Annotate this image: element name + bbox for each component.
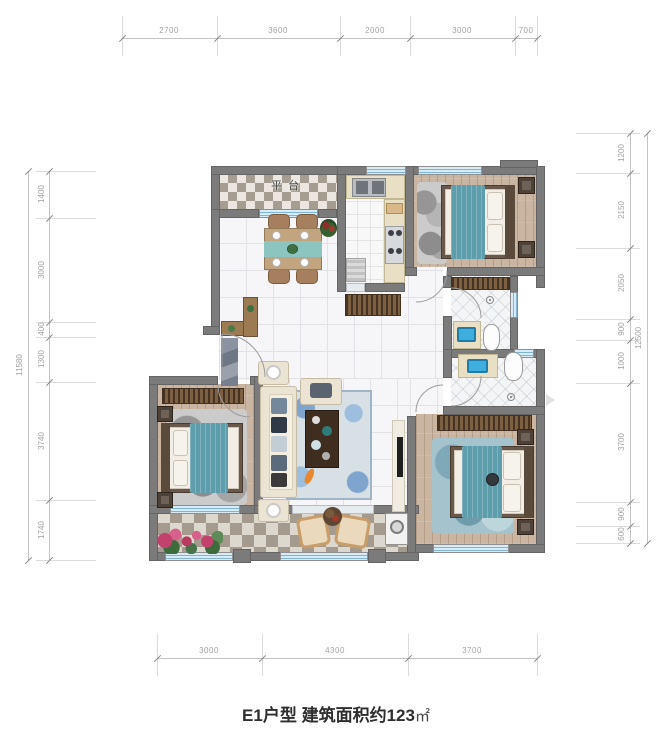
- window-bedroom-top-right: [418, 166, 482, 175]
- dim-line-left-total: [28, 171, 29, 560]
- armchair-cushion: [310, 383, 332, 398]
- dim-label: 1740: [37, 510, 47, 550]
- sink-basin: [356, 181, 368, 194]
- dim-label: 1400: [37, 174, 47, 214]
- plate: [300, 258, 309, 267]
- dim-label: 3700: [442, 646, 502, 655]
- table-decor: [312, 416, 320, 424]
- dim-line-top: [122, 38, 538, 39]
- dim-tick: [644, 540, 651, 547]
- dining-chair: [268, 268, 290, 284]
- dim-label: 3700: [617, 422, 627, 462]
- sofa-pillow: [271, 398, 287, 414]
- bed-blanket: [190, 423, 228, 493]
- dim-label: 1000: [617, 341, 627, 381]
- dim-label: 3000: [37, 250, 47, 290]
- table-decor: [322, 452, 330, 460]
- burner: [396, 230, 402, 236]
- wall: [447, 267, 545, 276]
- dim-label: 3000: [179, 646, 239, 655]
- wall: [318, 209, 337, 218]
- nightstand: [157, 406, 173, 422]
- dim-line-bottom: [157, 658, 538, 659]
- dim-extension-line: [36, 560, 96, 561]
- wall: [149, 376, 218, 385]
- wall: [443, 406, 545, 415]
- bathroom-sink: [467, 359, 488, 373]
- dim-extension-line: [36, 500, 96, 501]
- flower-bed: [157, 524, 223, 554]
- dim-label: 700: [496, 26, 556, 35]
- dim-label: 3000: [432, 26, 492, 35]
- kitchen-shelf: [346, 258, 366, 282]
- bed-pillow: [503, 484, 521, 512]
- dim-label: 2050: [617, 263, 627, 303]
- dim-label: 2150: [617, 190, 627, 230]
- wall: [500, 160, 538, 168]
- table-decor: [322, 426, 332, 436]
- burner: [396, 248, 402, 254]
- wall: [203, 326, 220, 335]
- wardrobe: [162, 388, 244, 404]
- bed-pillow: [503, 452, 521, 480]
- nightstand: [518, 241, 535, 258]
- corridor-cabinet: [345, 294, 401, 316]
- burner: [388, 248, 394, 254]
- sofa-pillow: [271, 455, 287, 471]
- bed-blanket: [451, 185, 485, 259]
- balcony-table: [323, 507, 342, 526]
- bathroom-closet: [451, 277, 510, 290]
- burner: [388, 230, 394, 236]
- dim-label: 3600: [248, 26, 308, 35]
- dim-extension-line: [36, 382, 96, 383]
- dim-label: 600: [617, 514, 627, 554]
- direction-marker: [546, 394, 555, 406]
- room-label-platform: 平台: [248, 177, 328, 193]
- toilet: [504, 352, 523, 381]
- plate: [272, 258, 281, 267]
- plate: [300, 231, 309, 240]
- entry-console-vertical: [243, 297, 258, 337]
- plan-title-text: E1户型 建筑面积约123: [242, 706, 415, 725]
- dim-extension-line: [537, 634, 538, 676]
- dim-line-right-total: [647, 133, 648, 543]
- wall: [337, 166, 346, 292]
- dim-label: 2700: [139, 26, 199, 35]
- dim-label: 2000: [345, 26, 405, 35]
- dim-label: 4300: [305, 646, 365, 655]
- bed-pillow: [487, 192, 503, 220]
- plan-title-unit: ㎡: [415, 707, 430, 725]
- console-plant: [228, 325, 235, 332]
- dim-label: 1200: [617, 133, 627, 173]
- corner-plant: [320, 219, 337, 237]
- table-plant: [287, 244, 298, 254]
- nightstand: [517, 519, 534, 535]
- floorplan-page: 2700 3600 2000 3000 700 3000 4300 3700 1…: [0, 0, 672, 747]
- dim-extension-line: [36, 171, 96, 172]
- wall: [233, 549, 251, 563]
- toilet: [483, 324, 500, 351]
- bed-headboard: [161, 423, 170, 493]
- bed-pillow: [173, 430, 188, 456]
- sink-basin: [372, 181, 384, 194]
- floor-corridor: [410, 378, 443, 418]
- wall: [211, 166, 347, 175]
- dim-label: 3740: [37, 421, 47, 461]
- wall: [211, 209, 220, 334]
- dining-chair: [296, 268, 318, 284]
- sofa-pillow: [271, 436, 287, 452]
- round-pillow: [486, 473, 499, 486]
- entry-mat: [221, 338, 238, 386]
- washer-drum: [390, 520, 404, 534]
- wall: [405, 166, 414, 276]
- kitchen-door-threshold: [346, 283, 365, 292]
- dim-extension-line: [157, 634, 158, 676]
- wall: [536, 349, 545, 553]
- wall: [368, 549, 386, 563]
- bathroom-sink: [457, 327, 476, 342]
- wall: [407, 416, 416, 553]
- coffee-table: [305, 410, 339, 468]
- bed-headboard: [505, 185, 515, 259]
- dim-extension-line: [36, 218, 96, 219]
- nightstand: [517, 429, 534, 445]
- sofa-pillow: [271, 417, 287, 433]
- table-lamp: [266, 503, 281, 518]
- tv: [397, 437, 403, 477]
- window-bedroom-left: [170, 505, 240, 514]
- window-bedroom-bottom-right: [433, 544, 509, 553]
- plan-title: E1户型 建筑面积约123㎡: [0, 701, 672, 726]
- wall: [365, 283, 405, 292]
- dim-line-left-segments: [49, 171, 50, 560]
- bed-headboard: [524, 446, 533, 518]
- wall: [405, 267, 417, 276]
- dim-tick: [25, 557, 32, 564]
- bed-pillow: [173, 460, 188, 486]
- table-decor: [311, 440, 321, 450]
- dim-label: 1300: [37, 339, 47, 379]
- dim-extension-line: [262, 634, 263, 676]
- nightstand: [518, 177, 535, 194]
- console-plant: [247, 305, 254, 312]
- floor-drain: [507, 393, 515, 401]
- exterior-notch: [519, 277, 536, 349]
- plate: [272, 231, 281, 240]
- nightstand: [157, 492, 173, 508]
- window-balcony-right: [280, 552, 368, 561]
- wall: [443, 349, 452, 378]
- floor-drain: [486, 296, 494, 304]
- window-kitchen: [366, 166, 406, 175]
- dim-extension-line: [408, 634, 409, 676]
- sofa-pillow: [271, 473, 287, 487]
- bed-pillow: [487, 224, 503, 252]
- cutting-board: [386, 203, 403, 214]
- dim-label-total: 11580: [15, 345, 25, 385]
- dim-label-total: 12500: [634, 318, 644, 358]
- table-lamp: [266, 365, 281, 380]
- window-bathroom-1: [510, 292, 518, 318]
